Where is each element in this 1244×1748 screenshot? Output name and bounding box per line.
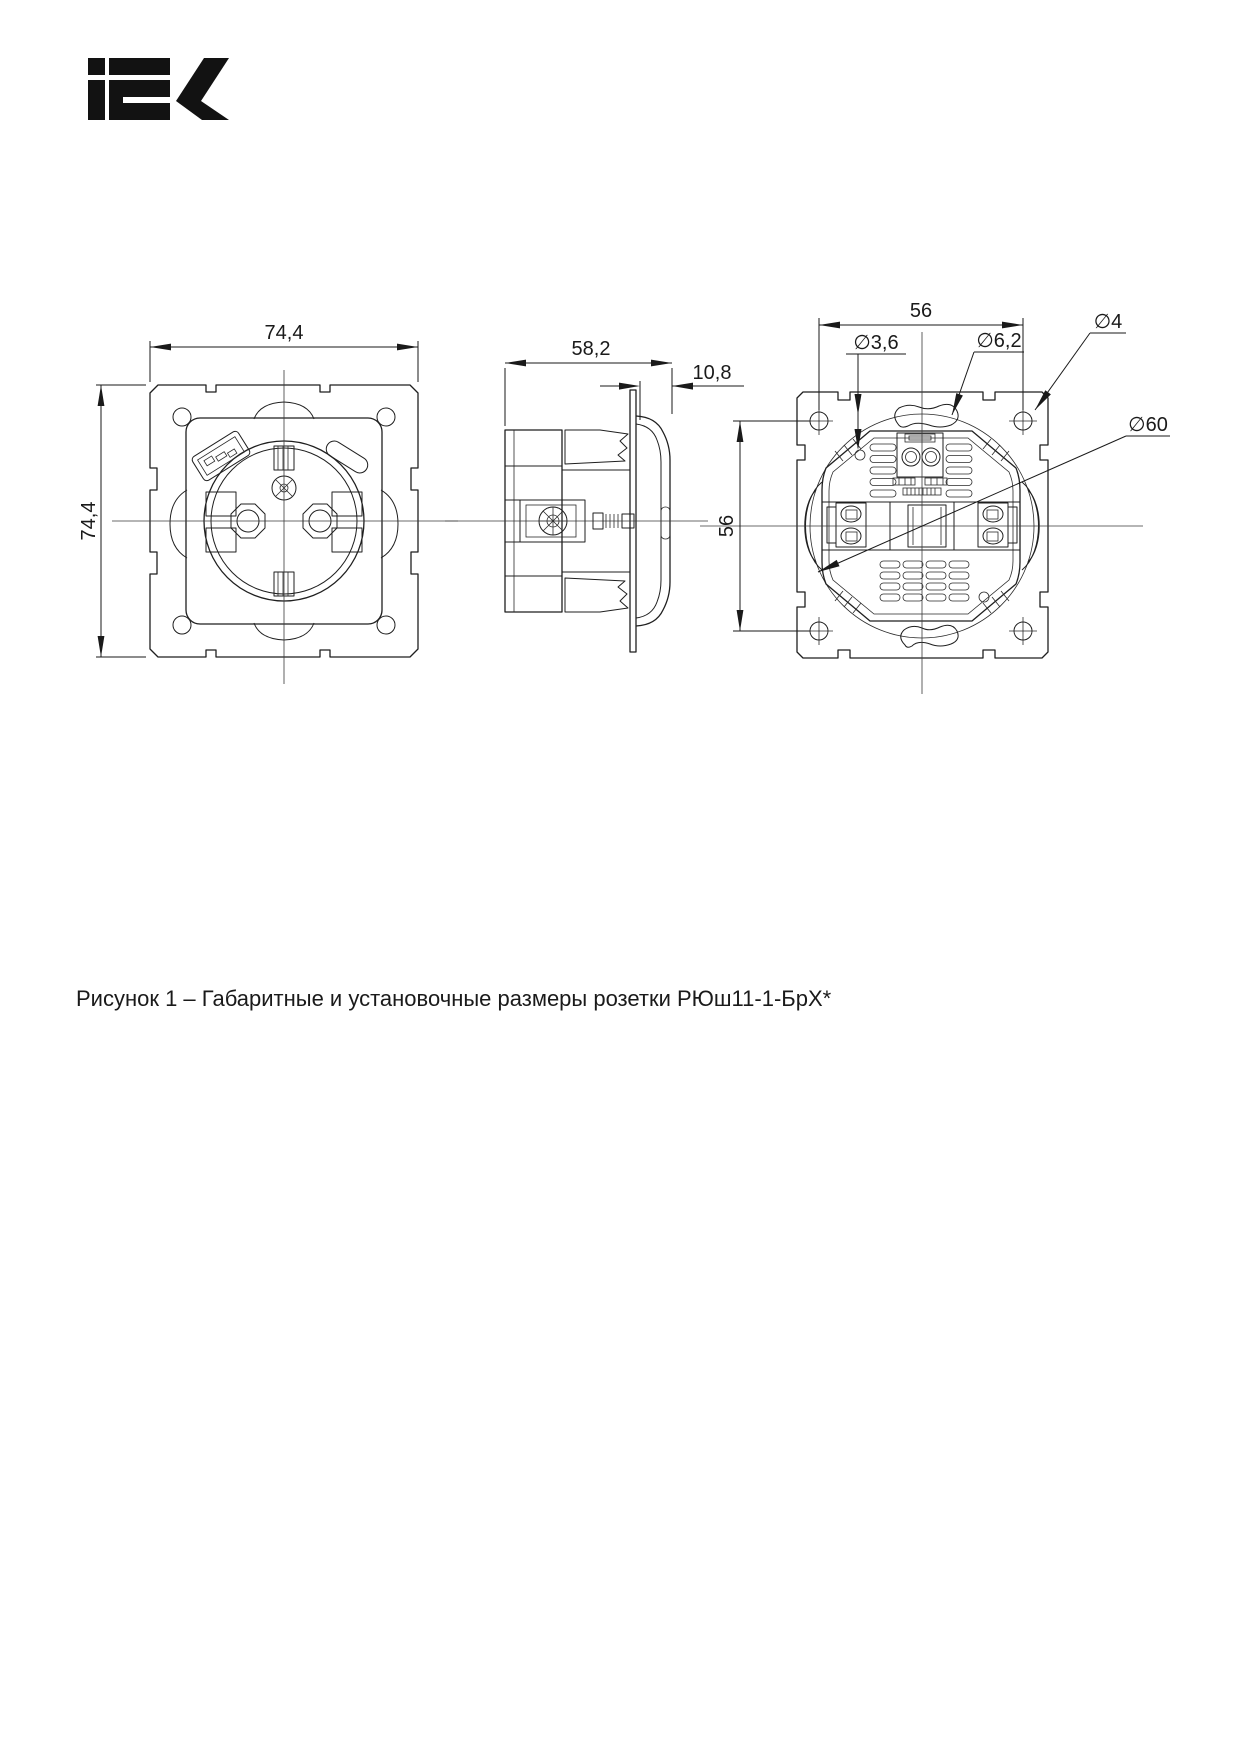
document-page: { "brand": { "name": "IEK" }, "views": {… <box>0 0 1244 1748</box>
front-height-value: 74,4 <box>78 502 100 541</box>
dimension-drawing: 74,4 74,4 <box>0 0 1244 1748</box>
back-centerlines <box>700 332 1143 694</box>
front-rating-label <box>191 430 252 482</box>
corner-hole-dia-value: ∅4 <box>1094 311 1123 333</box>
back-top-terminal <box>893 433 947 495</box>
side-depth-value: 58,2 <box>572 338 611 360</box>
back-width-value: 56 <box>910 300 932 322</box>
side-view: 58,2 10,8 <box>445 338 744 652</box>
slot-dia-value: ∅6,2 <box>976 330 1021 352</box>
side-frame-value: 10,8 <box>693 362 732 384</box>
front-view: 74,4 74,4 <box>78 322 458 684</box>
front-centerlines <box>112 370 458 684</box>
body-dia-value: ∅60 <box>1128 414 1168 436</box>
front-oval-slot <box>323 438 370 476</box>
figure-caption: Рисунок 1 – Габаритные и установочные ра… <box>76 986 831 1012</box>
back-bottom-slot <box>901 625 958 647</box>
back-bottom-vents <box>880 561 969 601</box>
claw-screw-dia-value: ∅3,6 <box>853 332 898 354</box>
side-depth-dimension: 58,2 <box>505 338 672 426</box>
back-top-vents <box>870 444 972 497</box>
back-height-value: 56 <box>716 515 738 537</box>
back-claw-screw-callout: ∅3,6 <box>846 332 906 450</box>
back-corner-hole-callout: ∅4 <box>1035 311 1126 410</box>
front-width-value: 74,4 <box>265 322 304 344</box>
back-view: 56 56 ∅3,6 ∅6,2 ∅4 <box>700 300 1170 694</box>
back-body-dia-callout: ∅60 <box>818 414 1170 572</box>
back-slot-callout: ∅6,2 <box>952 330 1024 415</box>
back-support-plate <box>797 392 1048 658</box>
